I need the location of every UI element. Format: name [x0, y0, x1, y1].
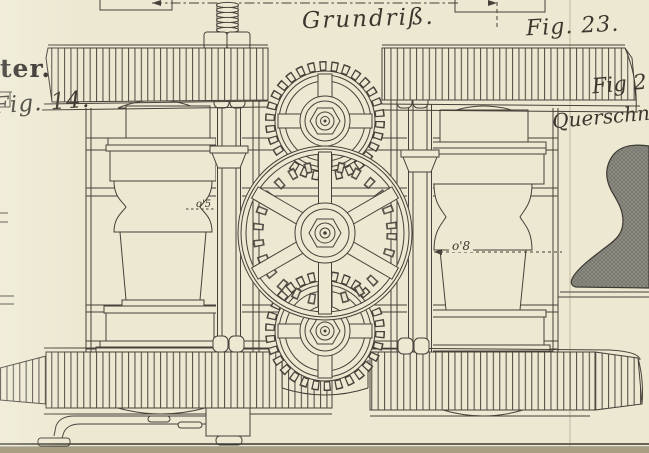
lower-right-gear-band [370, 348, 643, 416]
screw-nut-right [227, 32, 250, 49]
fig24-label: Fig 2 [591, 72, 647, 98]
table-below-plate [0, 447, 649, 453]
left-roll-barrel [120, 232, 206, 300]
left-top-chock [126, 106, 210, 138]
engraving-plate: Grundriß. Fig. 23. ter. Fig. 14. Fig 2 Q… [0, 0, 649, 453]
dimension-label-right: o'8 [449, 240, 473, 252]
paper-light-edge [0, 0, 84, 453]
left-lower-block [106, 313, 214, 341]
dimension-label-left: o'5 [196, 200, 211, 210]
screw-nut-left [204, 32, 227, 49]
left-bearing-block [110, 151, 216, 181]
fig23-label: Fig. 23. [525, 14, 619, 41]
left-roll-stack [96, 100, 220, 353]
right-top-chock [440, 110, 528, 142]
machine-drawing [0, 0, 649, 453]
right-lower-block [432, 317, 544, 345]
right-roll-barrel [440, 250, 526, 310]
plan-title-label: Grundriß. [302, 6, 435, 34]
paper-fold-line [569, 0, 571, 453]
right-bearing-block [432, 154, 544, 184]
